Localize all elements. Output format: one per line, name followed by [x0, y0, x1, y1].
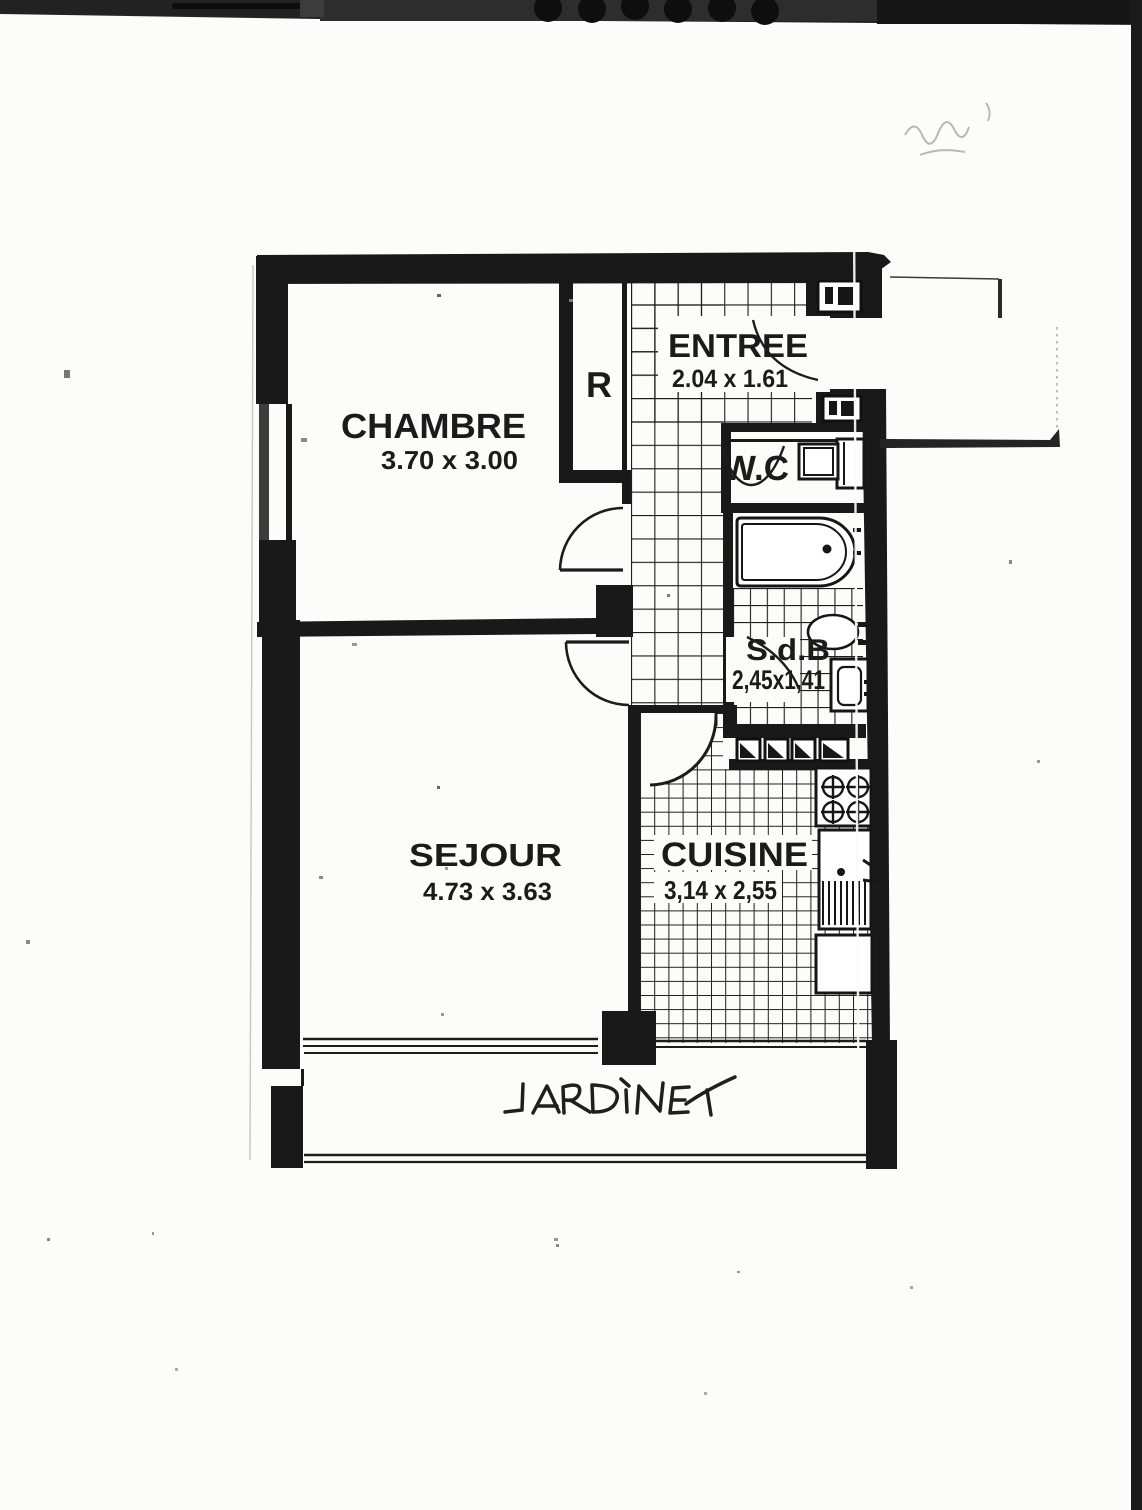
svg-text:4.73 x 3.63: 4.73 x 3.63 — [423, 878, 552, 906]
svg-text:S.d.B: S.d.B — [746, 634, 830, 667]
svg-text:CUISINE: CUISINE — [661, 836, 808, 874]
svg-text:3,14 x 2,55: 3,14 x 2,55 — [664, 875, 777, 905]
svg-text:R: R — [586, 364, 612, 405]
svg-text:CHAMBRE: CHAMBRE — [341, 407, 526, 446]
svg-text:SEJOUR: SEJOUR — [409, 837, 562, 873]
svg-text:2,45x1,41: 2,45x1,41 — [732, 665, 825, 695]
svg-text:W.C: W.C — [723, 449, 789, 488]
svg-text:2.04 x 1.61: 2.04 x 1.61 — [672, 365, 788, 393]
svg-text:3.70 x 3.00: 3.70 x 3.00 — [381, 445, 518, 475]
svg-text:ENTREE: ENTREE — [668, 327, 808, 364]
